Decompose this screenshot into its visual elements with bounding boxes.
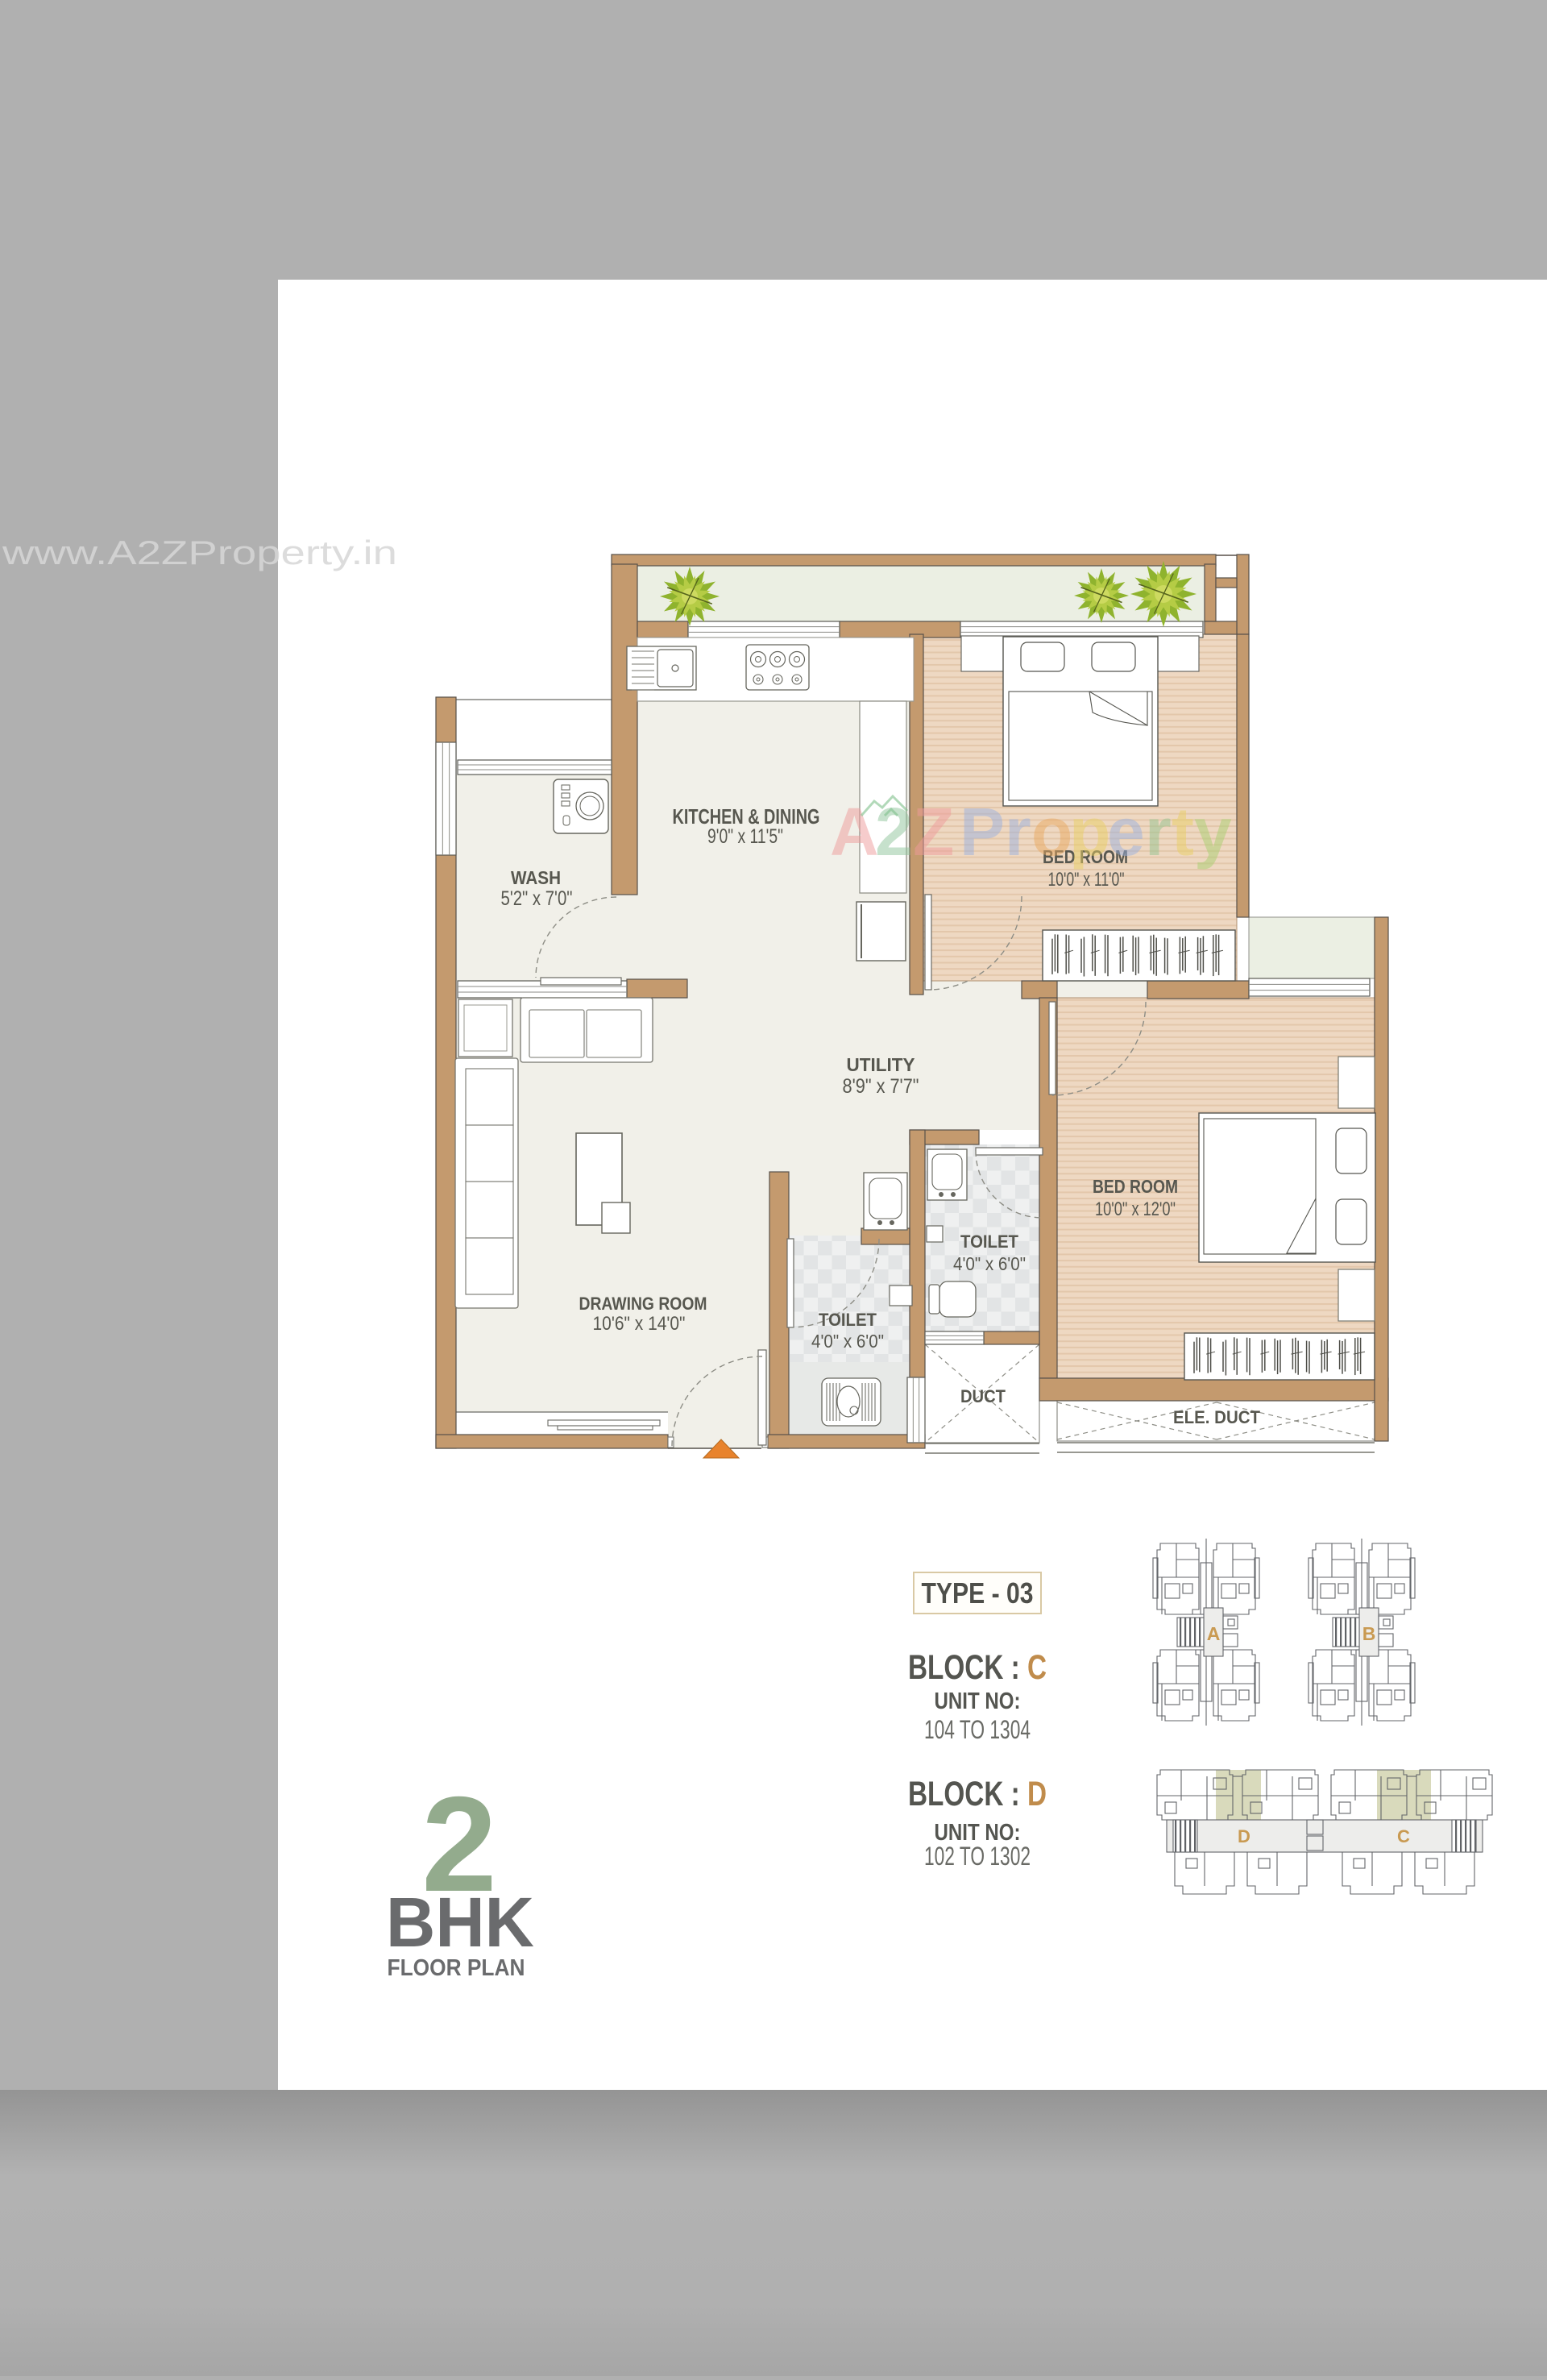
svg-text:p: p xyxy=(1069,794,1110,870)
svg-text:UTILITY: UTILITY xyxy=(847,1054,915,1075)
svg-text:DRAWING ROOM: DRAWING ROOM xyxy=(579,1294,707,1314)
svg-text:o: o xyxy=(1031,794,1072,870)
svg-text:104 TO 1304: 104 TO 1304 xyxy=(924,1715,1031,1744)
svg-text:t: t xyxy=(1172,794,1194,870)
svg-text:9'0" x 11'5": 9'0" x 11'5" xyxy=(707,825,783,848)
svg-text:ELE. DUCT: ELE. DUCT xyxy=(1173,1407,1261,1427)
svg-text:8'9" x 7'7": 8'9" x 7'7" xyxy=(843,1075,919,1098)
svg-text:102 TO 1302: 102 TO 1302 xyxy=(924,1842,1031,1871)
svg-text:A: A xyxy=(1207,1623,1221,1644)
svg-text:4'0" x 6'0": 4'0" x 6'0" xyxy=(811,1331,884,1352)
svg-text:Z: Z xyxy=(913,794,954,870)
svg-text:C: C xyxy=(1397,1826,1410,1846)
svg-text:TOILET: TOILET xyxy=(819,1310,877,1330)
svg-text:r: r xyxy=(1145,794,1172,870)
svg-text:TOILET: TOILET xyxy=(960,1232,1019,1252)
svg-text:r: r xyxy=(1005,794,1031,870)
svg-text:BED ROOM: BED ROOM xyxy=(1093,1176,1178,1197)
svg-text:4'0" x 6'0": 4'0" x 6'0" xyxy=(953,1253,1026,1274)
svg-text:y: y xyxy=(1194,794,1232,870)
svg-text:www.A2ZProperty.in: www.A2ZProperty.in xyxy=(2,534,397,571)
svg-text:TYPE - 03: TYPE - 03 xyxy=(922,1576,1034,1610)
svg-text:10'0" x 11'0": 10'0" x 11'0" xyxy=(1048,869,1125,891)
svg-text:WASH: WASH xyxy=(511,867,561,888)
svg-text:BLOCK : C: BLOCK : C xyxy=(908,1648,1047,1687)
svg-text:BLOCK : D: BLOCK : D xyxy=(908,1775,1047,1813)
svg-text:10'0" x 12'0": 10'0" x 12'0" xyxy=(1095,1198,1176,1220)
svg-text:10'6" x 14'0": 10'6" x 14'0" xyxy=(593,1313,686,1335)
svg-text:DUCT: DUCT xyxy=(960,1386,1006,1406)
svg-text:e: e xyxy=(1107,794,1145,870)
svg-text:D: D xyxy=(1238,1826,1250,1846)
svg-text:P: P xyxy=(960,794,1005,870)
svg-text:5'2" x 7'0": 5'2" x 7'0" xyxy=(501,887,573,910)
svg-text:BHK: BHK xyxy=(386,1884,534,1962)
svg-text:UNIT NO:: UNIT NO: xyxy=(935,1688,1021,1714)
svg-text:B: B xyxy=(1362,1623,1376,1644)
svg-text:FLOOR PLAN: FLOOR PLAN xyxy=(388,1955,525,1981)
